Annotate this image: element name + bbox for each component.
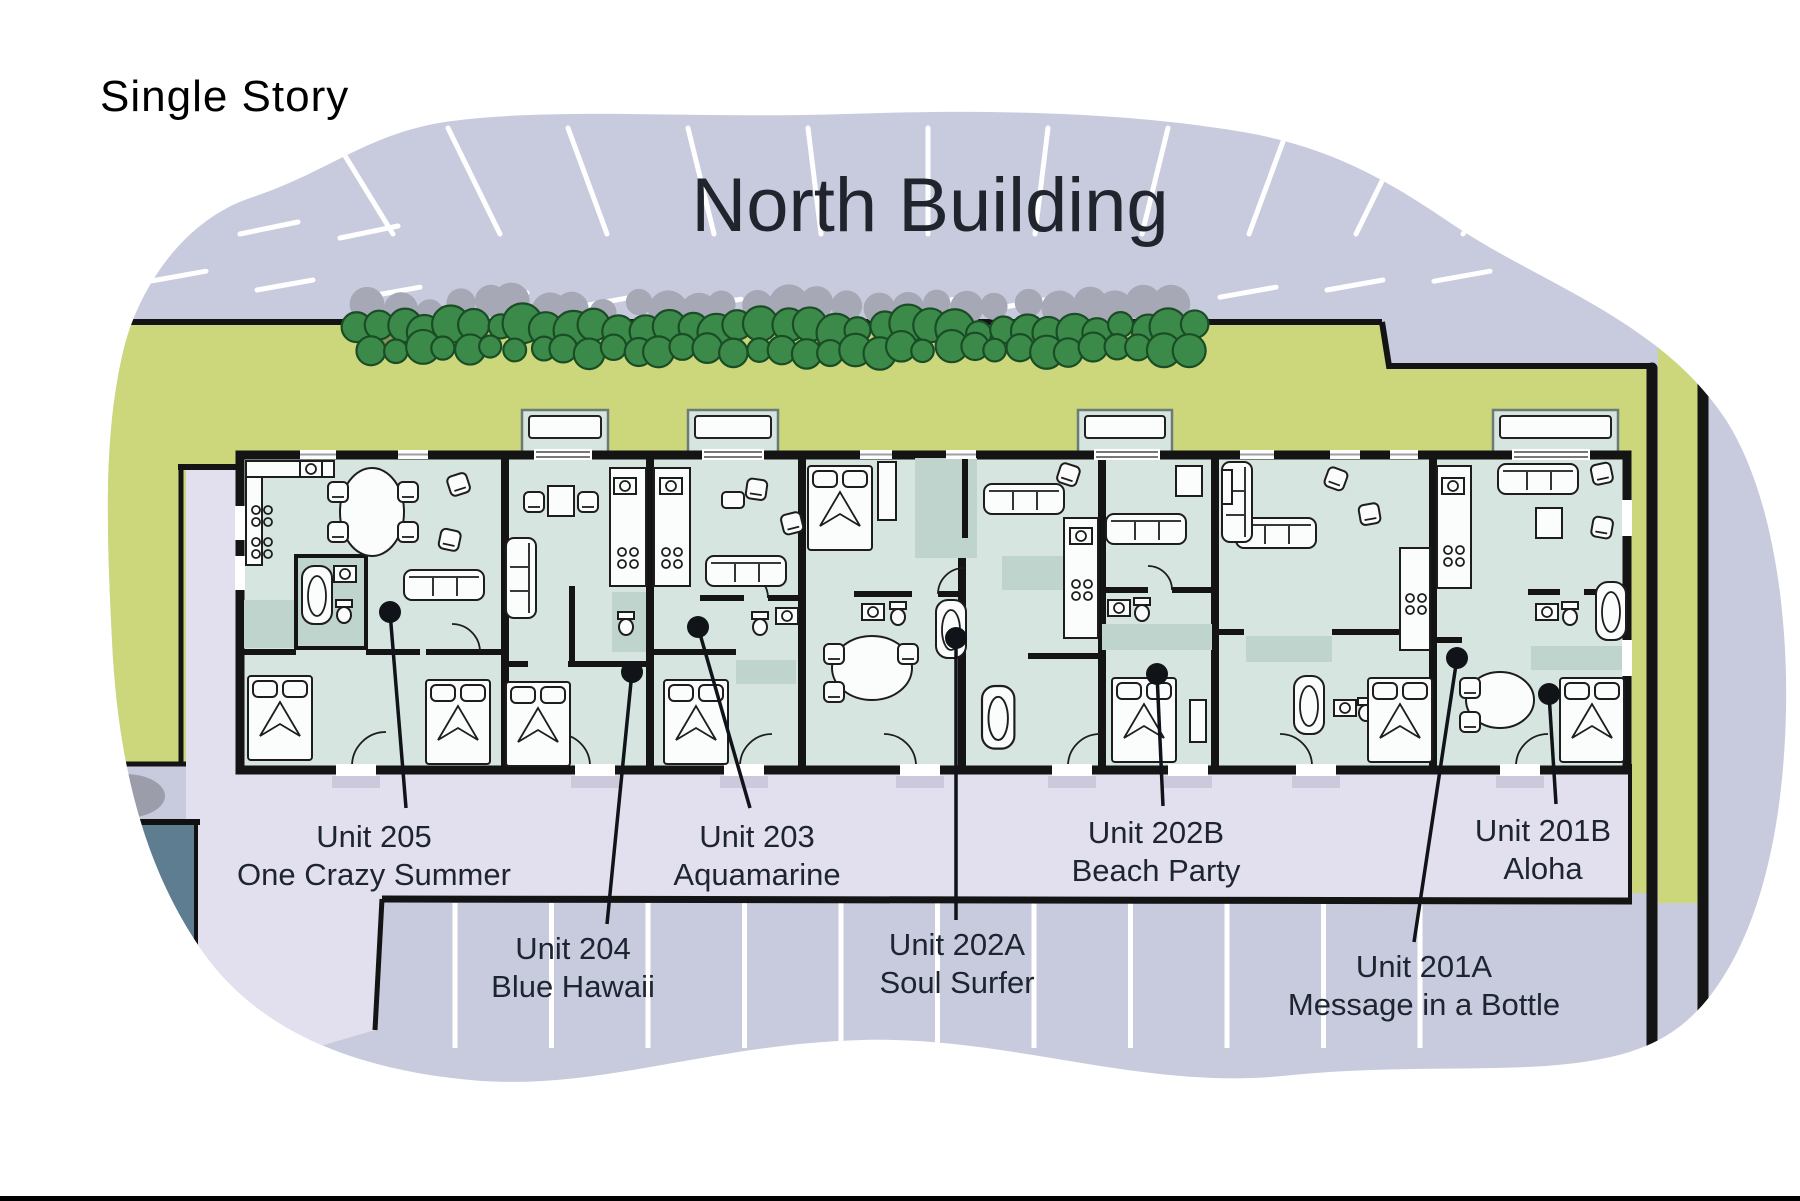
unit-label-202B: Unit 202B Beach Party xyxy=(1072,814,1241,890)
unit-name: Beach Party xyxy=(1072,852,1241,890)
unit-name: Aloha xyxy=(1475,850,1611,888)
building-title: North Building xyxy=(691,162,1168,249)
unit-label-205: Unit 205 One Crazy Summer xyxy=(237,818,511,894)
unit-label-201B: Unit 201B Aloha xyxy=(1475,812,1611,888)
unit-area-201A[interactable] xyxy=(1215,455,1433,770)
unit-label-204: Unit 204 Blue Hawaii xyxy=(491,930,655,1006)
unit-label-201A: Unit 201A Message in a Bottle xyxy=(1288,948,1560,1024)
unit-area-201B[interactable] xyxy=(1433,455,1627,770)
site-plan: Single Story North Building Unit 205 One… xyxy=(0,0,1800,1201)
unit-name: Message in a Bottle xyxy=(1288,986,1560,1024)
callout-dot-203 xyxy=(687,616,709,638)
unit-label-203: Unit 203 Aquamarine xyxy=(673,818,840,894)
callout-dot-204 xyxy=(621,661,643,683)
grass-median xyxy=(1658,224,1698,903)
callout-dot-202A xyxy=(945,627,967,649)
unit-number: Unit 201A xyxy=(1288,948,1560,986)
unit-name: One Crazy Summer xyxy=(237,856,511,894)
sidewalk-edge-line xyxy=(382,899,1632,901)
callout-dot-205 xyxy=(379,601,401,623)
unit-number: Unit 205 xyxy=(237,818,511,856)
north-building-floorplan xyxy=(235,449,1632,788)
bottom-border xyxy=(0,1196,1800,1201)
unit-label-202A: Unit 202A Soul Surfer xyxy=(879,926,1034,1002)
unit-area-205[interactable] xyxy=(240,455,505,770)
callout-dot-202B xyxy=(1146,663,1168,685)
unit-area-202A[interactable] xyxy=(802,455,1102,770)
unit-number: Unit 203 xyxy=(673,818,840,856)
walkway-left xyxy=(186,467,240,770)
hedge xyxy=(342,283,1209,370)
walkway-lower-left xyxy=(186,898,382,1052)
unit-number: Unit 201B xyxy=(1475,812,1611,850)
unit-number: Unit 202B xyxy=(1072,814,1241,852)
unit-name: Soul Surfer xyxy=(879,964,1034,1002)
unit-number: Unit 204 xyxy=(491,930,655,968)
unit-name: Blue Hawaii xyxy=(491,968,655,1006)
unit-name: Aquamarine xyxy=(673,856,840,894)
callout-dot-201A xyxy=(1446,647,1468,669)
story-label: Single Story xyxy=(100,72,349,122)
callout-dot-201B xyxy=(1538,683,1560,705)
unit-number: Unit 202A xyxy=(879,926,1034,964)
